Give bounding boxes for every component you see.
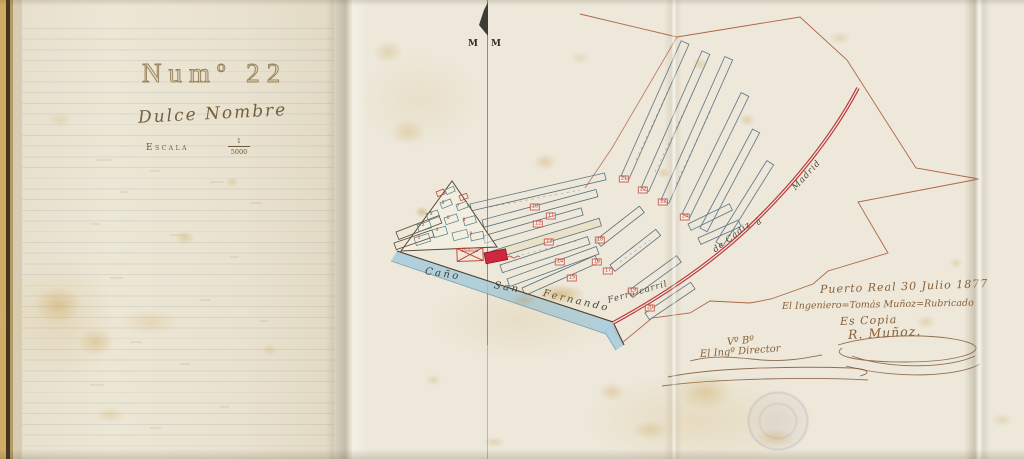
- director-signature-flourish: [662, 355, 868, 386]
- map-drawing: [0, 0, 1024, 459]
- ink-stamp: [748, 392, 808, 450]
- concession-boundary: [580, 14, 979, 343]
- meridian-letter-right: M: [491, 39, 501, 49]
- north-arrow-icon: [479, 2, 488, 36]
- show-through-marks: [90, 160, 268, 428]
- meridian-letter-left: M: [468, 39, 478, 49]
- scanned-map-sheet: Numº 22 Dulce Nombre Escala 1 5000: [0, 0, 1024, 459]
- ink-stamp-inner-ring: [759, 403, 797, 439]
- building-label: Bodega: [457, 249, 483, 254]
- water-channel: [391, 251, 624, 350]
- village-parcels: [394, 181, 497, 251]
- strip-annotations: [490, 82, 712, 262]
- tiny-red-label-squiggle: [508, 256, 520, 258]
